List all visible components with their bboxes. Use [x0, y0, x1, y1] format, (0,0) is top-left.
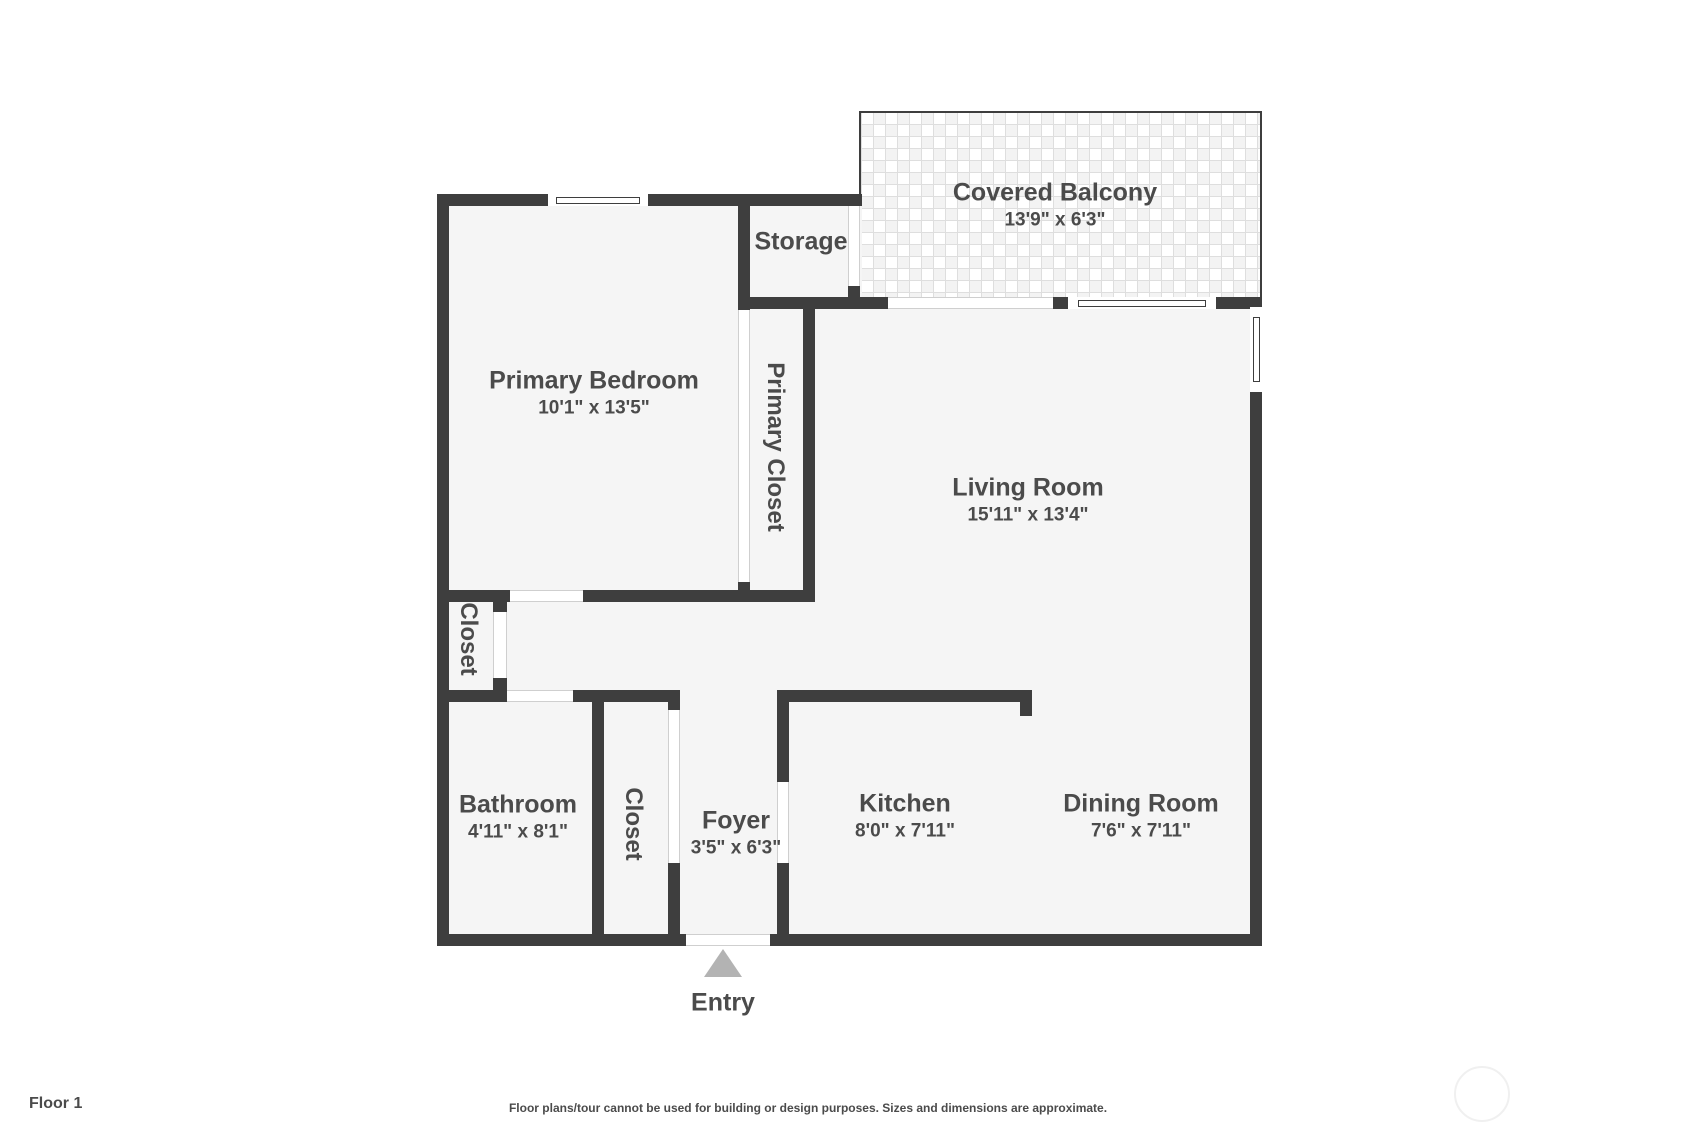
door-living-balcony	[888, 297, 1053, 309]
door-foyer-closet	[668, 710, 680, 863]
label-kitchen: Kitchen 8'0" x 7'11"	[855, 789, 955, 844]
door-hall-closet	[493, 612, 507, 678]
room-dims: 4'11" x 8'1"	[459, 819, 577, 846]
wall-bathroom-right	[592, 690, 604, 934]
label-primary-closet: Primary Closet	[761, 362, 789, 531]
label-bathroom: Bathroom 4'11" x 8'1"	[459, 790, 577, 845]
label-primary-bedroom: Primary Bedroom 10'1" x 13'5"	[489, 366, 699, 421]
wall-hall-closet-stub-bottom	[493, 678, 507, 702]
room-name: Foyer	[691, 806, 781, 835]
room-name: Living Room	[952, 473, 1103, 502]
watermark-circle	[1454, 1066, 1510, 1122]
wall-kitchen-stub	[1020, 702, 1032, 716]
room-dims: 15'11" x 13'4"	[952, 502, 1103, 529]
floor-plan-canvas: Covered Balcony 13'9" x 6'3" Storage Pri…	[0, 0, 1697, 1131]
label-dining-room: Dining Room 7'6" x 7'11"	[1063, 789, 1219, 844]
door-entry	[686, 934, 770, 946]
disclaimer-text: Floor plans/tour cannot be used for buil…	[509, 1101, 1107, 1115]
wall-primary-closet-right	[803, 309, 815, 602]
door-primary-closet	[738, 310, 750, 582]
window-pane	[1253, 317, 1260, 382]
label-covered-balcony: Covered Balcony 13'9" x 6'3"	[953, 178, 1157, 233]
entry-arrow-icon	[704, 949, 742, 977]
door-primary-bedroom	[510, 590, 583, 602]
wall-bottom	[437, 934, 1262, 946]
room-name: Primary Bedroom	[489, 366, 699, 395]
room-name: Bathroom	[459, 790, 577, 819]
label-hall-closet: Closet	[454, 602, 482, 675]
wall-top	[437, 194, 862, 206]
window-living-balcony	[1068, 297, 1216, 309]
label-storage: Storage	[754, 228, 847, 257]
window-pane	[556, 197, 640, 204]
room-living-dining	[803, 297, 1262, 946]
wall-hall-closet-stub-top	[493, 590, 507, 612]
window-living-right	[1250, 307, 1262, 392]
window-bedroom	[548, 194, 648, 206]
room-dims: 7'6" x 7'11"	[1063, 818, 1219, 845]
wall-bedroom-closet-stub	[738, 582, 750, 590]
room-name: Covered Balcony	[953, 178, 1157, 207]
room-dims: 13'9" x 6'3"	[953, 207, 1157, 234]
wall-right	[1250, 297, 1262, 946]
wall-left	[437, 194, 449, 946]
room-dims: 10'1" x 13'5"	[489, 395, 699, 422]
wall-bedroom-storage	[738, 194, 750, 310]
door-bathroom	[507, 690, 573, 702]
room-dims: 3'5" x 6'3"	[691, 835, 781, 862]
floor-label: Floor 1	[29, 1095, 82, 1113]
room-dims: 8'0" x 7'11"	[855, 818, 955, 845]
room-name: Dining Room	[1063, 789, 1219, 818]
label-foyer: Foyer 3'5" x 6'3"	[691, 806, 781, 861]
wall-kitchen-top	[777, 690, 1032, 702]
label-living-room: Living Room 15'11" x 13'4"	[952, 473, 1103, 528]
label-foyer-closet: Closet	[619, 787, 647, 860]
door-storage-balcony	[848, 206, 860, 286]
room-name: Kitchen	[855, 789, 955, 818]
entry-label: Entry	[691, 989, 755, 1018]
window-pane	[1078, 300, 1206, 307]
room-name: Storage	[754, 228, 847, 257]
